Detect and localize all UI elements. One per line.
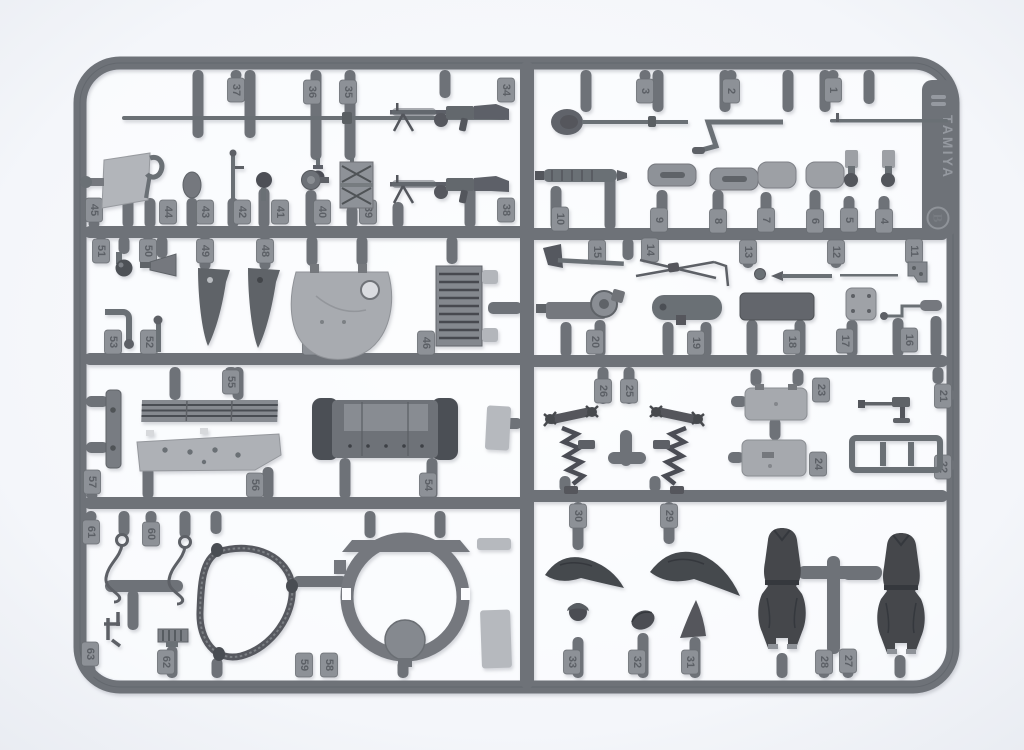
part-number-tag: 50 [140, 239, 157, 263]
sprue-stub [747, 320, 758, 357]
part-number-tag: 63 [82, 642, 99, 666]
sprue-stub [663, 322, 674, 357]
svg-text:45: 45 [88, 204, 100, 216]
part-number-tag: 41 [272, 200, 289, 224]
part-number-tag: 56 [247, 473, 264, 497]
sprue-stub [793, 369, 804, 386]
part-number-tag: 13 [740, 240, 757, 264]
plate-letter: B [931, 214, 946, 223]
svg-text:26: 26 [597, 385, 609, 397]
part-number-tag: 32 [629, 650, 646, 674]
sprue-stub [605, 176, 616, 230]
svg-text:46: 46 [420, 337, 432, 349]
sprue-stub [357, 236, 368, 266]
sprue-stub [143, 467, 154, 499]
sprue-stub [653, 70, 664, 112]
part-number-tag: 8 [710, 209, 727, 233]
svg-text:49: 49 [199, 245, 211, 257]
part-number-tag: 11 [906, 239, 923, 263]
sprue-stub [843, 569, 881, 580]
svg-text:20: 20 [589, 336, 601, 348]
part-number-tag: 61 [83, 520, 100, 544]
part-number-tag: 12 [828, 240, 845, 264]
part-number-tag: 62 [158, 650, 175, 674]
svg-text:54: 54 [422, 479, 434, 492]
flat-panel [485, 405, 511, 450]
sprue-stub [783, 70, 794, 112]
part-55-louvre-grille [141, 400, 278, 422]
svg-text:5: 5 [843, 217, 855, 223]
sprue-stub [864, 70, 875, 104]
svg-text:17: 17 [839, 335, 851, 347]
sprue-stub [770, 418, 781, 440]
svg-text:12: 12 [830, 246, 842, 258]
part-number-tag: 57 [84, 470, 101, 494]
svg-text:13: 13 [742, 246, 754, 258]
svg-text:2: 2 [725, 88, 737, 94]
svg-text:56: 56 [249, 479, 261, 491]
sprue-stub [623, 238, 634, 260]
svg-text:62: 62 [160, 656, 172, 668]
sprue-stub [933, 367, 944, 384]
svg-text:59: 59 [298, 659, 310, 671]
svg-text:16: 16 [903, 334, 915, 346]
svg-text:31: 31 [684, 656, 696, 668]
part-number-tag: 4 [876, 209, 893, 233]
svg-text:1: 1 [827, 87, 839, 93]
part-number-tag: 54 [420, 473, 437, 497]
sprue-stub [86, 396, 108, 407]
part-number-tag: 49 [197, 239, 214, 263]
svg-text:4: 4 [878, 218, 890, 225]
part-number-tag: 40 [314, 200, 331, 224]
flat-panel [477, 538, 511, 550]
sprue-stub [187, 198, 198, 228]
sprue-stub [435, 511, 446, 538]
sprue-stub [895, 655, 906, 678]
svg-text:10: 10 [554, 213, 566, 225]
part-number-tag: 9 [651, 208, 668, 232]
part-10-gun-barrel [535, 169, 627, 182]
sprue-stub [393, 202, 404, 228]
part-number-tag: 59 [296, 653, 313, 677]
part-number-tag: 18 [784, 330, 801, 354]
part-number-tag: 38 [498, 198, 515, 222]
part-17-mount-plate [846, 288, 876, 320]
part-number-tag: 20 [587, 330, 604, 354]
svg-text:60: 60 [145, 528, 157, 540]
brand-text: TAMIYA [940, 115, 955, 180]
part-13-cap [755, 269, 766, 280]
sprue-photo: 3736353432145444342414039381098765451504… [0, 0, 1024, 750]
sprue-stub [180, 511, 191, 538]
sprue-stub [777, 653, 788, 678]
sprue-stub [145, 198, 156, 228]
part-number-tag: 16 [901, 328, 918, 352]
part-8-hatch-paddle-small [710, 168, 758, 190]
svg-text:3: 3 [639, 88, 651, 94]
part-number-tag: 60 [143, 522, 160, 546]
part-24-hatch [742, 440, 806, 476]
part-number-tag: 44 [160, 200, 177, 224]
svg-text:7: 7 [760, 217, 772, 223]
svg-text:63: 63 [84, 648, 96, 660]
sprue-stub [561, 322, 572, 357]
part-number-tag: 10 [552, 207, 569, 231]
svg-text:9: 9 [653, 217, 665, 223]
part-7-stowage-lid [758, 162, 796, 188]
part-54-fuel-tank [312, 398, 458, 460]
sprue-stub [245, 70, 256, 138]
svg-text:53: 53 [107, 336, 119, 348]
svg-text:58: 58 [323, 659, 335, 671]
part-number-tag: 37 [228, 78, 245, 102]
svg-text:29: 29 [663, 510, 675, 522]
svg-text:14: 14 [644, 244, 656, 257]
part-number-tag: 1 [825, 78, 842, 102]
part-number-tag: 2 [723, 79, 740, 103]
svg-text:24: 24 [812, 458, 824, 471]
svg-text:57: 57 [86, 476, 98, 488]
sprue-stub [340, 458, 351, 499]
svg-text:23: 23 [815, 384, 827, 396]
svg-text:41: 41 [274, 206, 286, 218]
sprue-stub [170, 367, 181, 400]
svg-text:8: 8 [712, 218, 724, 224]
part-number-tag: 7 [758, 208, 775, 232]
sprue-stub [581, 70, 592, 112]
part-number-tag: 17 [837, 329, 854, 353]
sprue-stub [193, 70, 204, 138]
sprue-stub [650, 476, 661, 492]
part-number-tag: 23 [813, 378, 830, 402]
part-9-hatch-paddle [648, 164, 696, 186]
part-number-tag: 28 [816, 650, 833, 674]
sprue-stub [128, 590, 139, 630]
part-number-tag: 53 [105, 330, 122, 354]
part-number-tag: 5 [841, 208, 858, 232]
part-number-tag: 34 [498, 78, 515, 102]
sprue-stub [86, 442, 108, 453]
part-number-tag: 25 [621, 379, 638, 403]
part-number-tag: 30 [570, 504, 587, 528]
sprue-stub [365, 511, 376, 538]
part-number-tag: 21 [935, 384, 952, 408]
part-number-tag: 35 [340, 80, 357, 104]
part-6-stowage-lid [806, 162, 844, 188]
part-23-hatch [745, 384, 807, 420]
sprue-stub [931, 316, 942, 357]
part-number-tag: 29 [661, 504, 678, 528]
svg-text:30: 30 [572, 510, 584, 522]
svg-text:43: 43 [199, 206, 211, 218]
flat-panel [480, 609, 512, 668]
svg-text:25: 25 [623, 385, 635, 397]
sprue-stub [447, 236, 458, 264]
svg-text:40: 40 [316, 206, 328, 218]
part-number-tag: 31 [682, 650, 699, 674]
svg-text:51: 51 [95, 245, 107, 257]
part-number-tag: 26 [595, 379, 612, 403]
part-number-tag: 48 [257, 239, 274, 263]
sprue-stub [119, 236, 130, 254]
part-number-tag: 6 [807, 209, 824, 233]
part-39-ammo-crate [340, 162, 373, 208]
mold-code-emboss [931, 102, 946, 106]
svg-text:55: 55 [225, 376, 237, 388]
part-number-tag: 36 [304, 80, 321, 104]
sprue-stub [307, 236, 318, 266]
part-number-tag: 14 [642, 238, 659, 262]
part-number-tag: 19 [688, 331, 705, 355]
svg-text:36: 36 [306, 86, 318, 98]
sprue-stub [440, 70, 451, 98]
part-57-side-strip [106, 390, 121, 468]
part-number-tag: 46 [418, 331, 435, 355]
svg-text:48: 48 [259, 245, 271, 257]
part-number-tag: 43 [197, 200, 214, 224]
sprue-stub [119, 511, 130, 536]
svg-text:32: 32 [631, 656, 643, 668]
part-number-tag: 24 [810, 452, 827, 476]
part-number-tag: 3 [637, 79, 654, 103]
part-number-tag: 45 [86, 198, 103, 222]
part-number-tag: 42 [234, 200, 251, 224]
part-number-tag: 52 [141, 330, 158, 354]
part-number-tag: 55 [223, 370, 240, 394]
sprue-stub [263, 467, 274, 499]
svg-text:52: 52 [143, 336, 155, 348]
svg-text:34: 34 [500, 84, 512, 97]
svg-text:44: 44 [162, 206, 174, 219]
svg-text:28: 28 [818, 656, 830, 668]
svg-text:21: 21 [937, 390, 949, 402]
svg-text:33: 33 [566, 656, 578, 668]
part-43-canteen [183, 172, 201, 198]
part-number-tag: 51 [93, 239, 110, 263]
part-number-tag: 27 [840, 649, 857, 673]
svg-text:19: 19 [690, 337, 702, 349]
svg-text:18: 18 [786, 336, 798, 348]
sprue-stub [347, 206, 358, 228]
svg-text:37: 37 [230, 84, 242, 96]
sprue-stub [212, 658, 223, 678]
svg-text:42: 42 [236, 206, 248, 218]
sprue-stub [211, 511, 222, 534]
sprue-stub [157, 236, 168, 258]
svg-text:6: 6 [809, 218, 821, 224]
part-number-tag: 58 [321, 653, 338, 677]
svg-text:11: 11 [908, 245, 920, 257]
svg-text:27: 27 [842, 655, 854, 667]
svg-text:61: 61 [85, 526, 97, 538]
part-18-cylinder [740, 293, 814, 320]
part-number-tag: 33 [564, 650, 581, 674]
sprue-stub [488, 302, 522, 314]
sprue-stub [293, 576, 347, 587]
mold-code-emboss [931, 95, 946, 99]
svg-text:50: 50 [142, 245, 154, 257]
svg-text:15: 15 [591, 246, 603, 258]
sprue-stub [751, 369, 762, 386]
svg-text:38: 38 [500, 204, 512, 216]
svg-text:35: 35 [342, 86, 354, 98]
